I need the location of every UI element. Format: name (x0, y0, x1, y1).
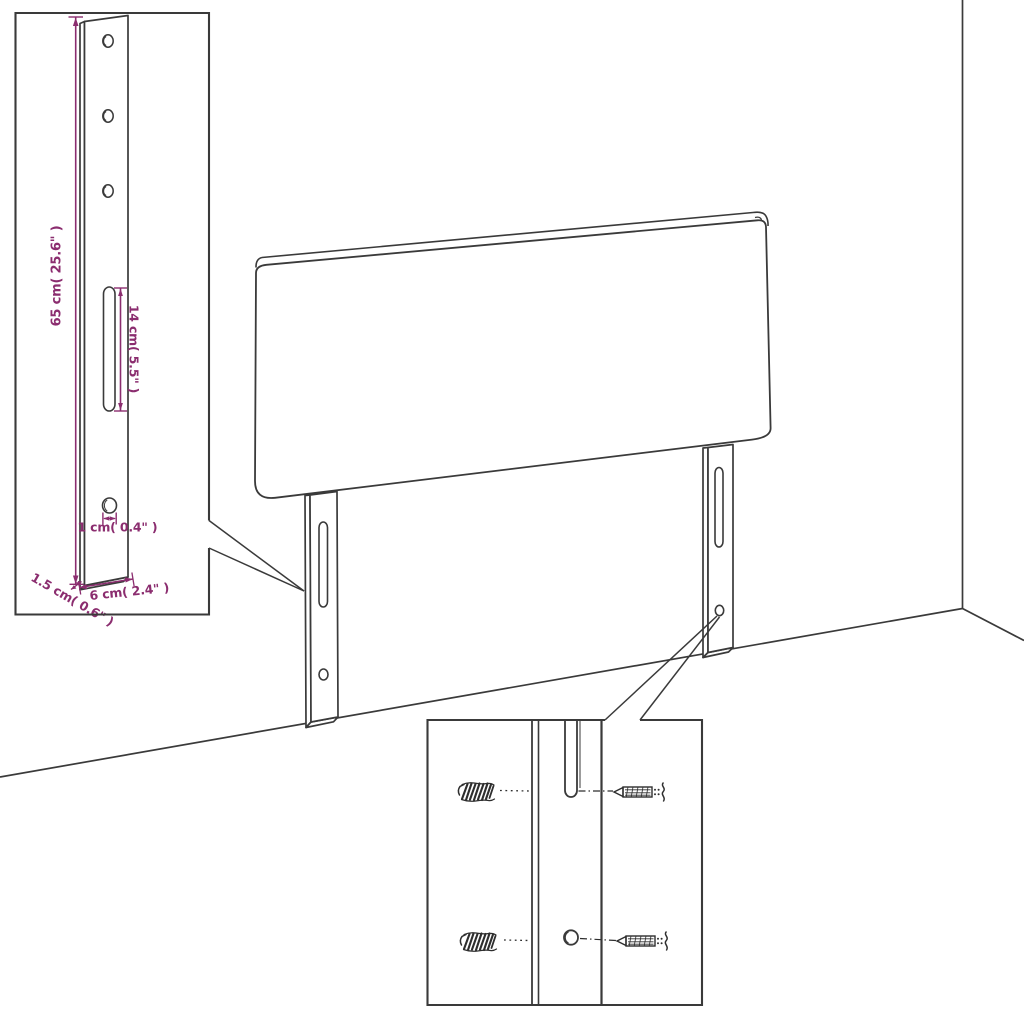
leg-detail-callout: 65 cm( 25.6" ) 14 cm( 5.5" ) 1 cm( 0.4" … (16, 13, 210, 629)
headboard-panel-front-face (255, 220, 771, 498)
leg-height-label: 65 cm( 25.6" ) (50, 226, 65, 327)
headboard-panel (255, 212, 771, 498)
bracket-front-face (85, 16, 129, 586)
mounting-detail-callout (428, 720, 703, 1005)
floor-edge-right (963, 609, 1024, 641)
hole-width-label: 1 cm( 0.4" ) (78, 520, 158, 535)
headboard-diagram: 65 cm( 25.6" ) 14 cm( 5.5" ) 1 cm( 0.4" … (0, 0, 1024, 1024)
left-mounting-leg (305, 492, 338, 728)
diagram-canvas: 65 cm( 25.6" ) 14 cm( 5.5" ) 1 cm( 0.4" … (0, 0, 1024, 1024)
slot-length-label: 14 cm( 5.5" ) (127, 305, 142, 393)
leg-detail-pointer-lines (209, 521, 304, 592)
